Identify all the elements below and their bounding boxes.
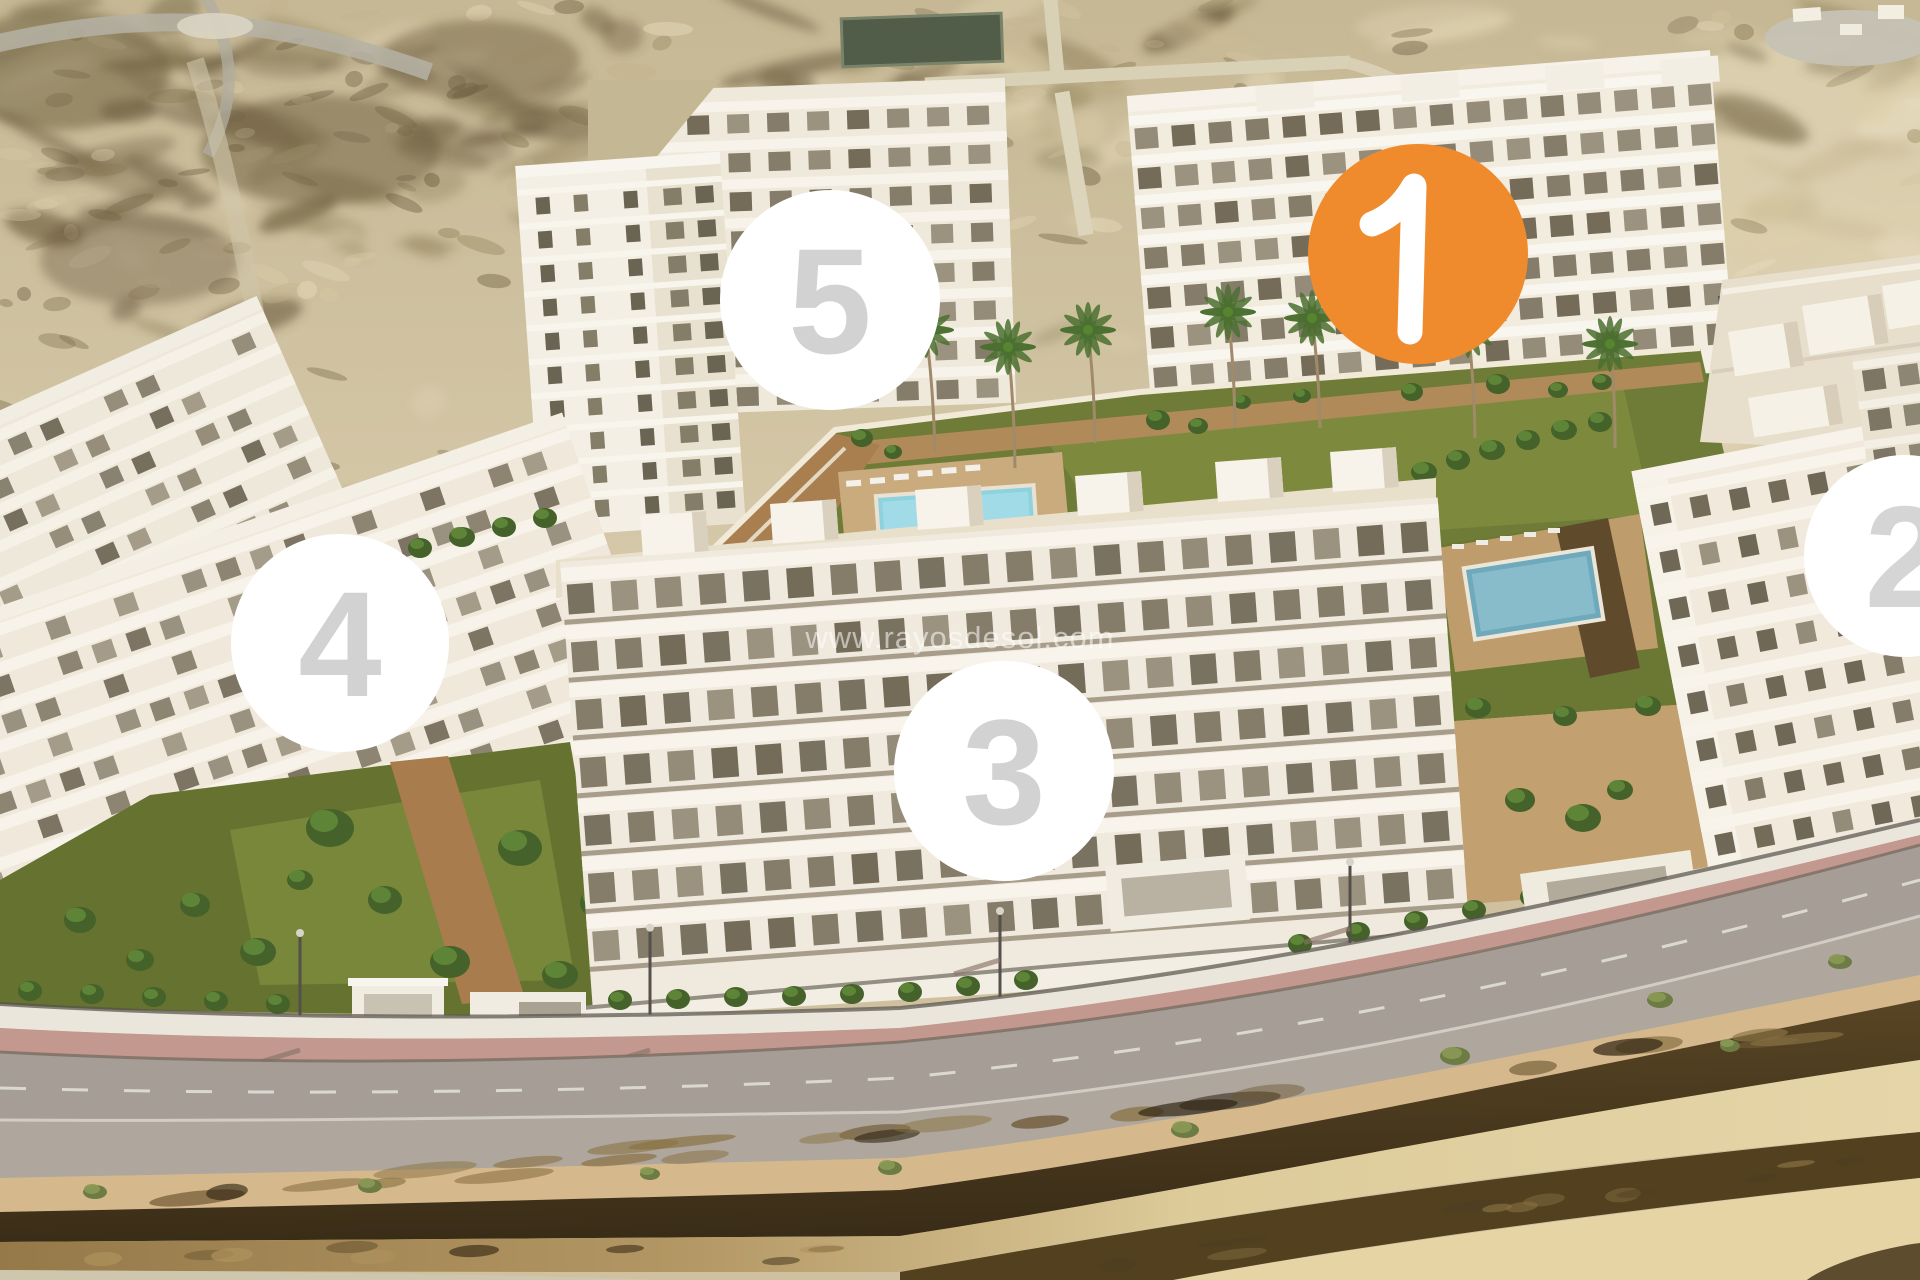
svg-text:3: 3 — [962, 688, 1045, 856]
svg-text:5: 5 — [788, 217, 871, 385]
svg-text:www.rayosdesol.com: www.rayosdesol.com — [804, 620, 1114, 655]
svg-text:2: 2 — [1865, 476, 1920, 638]
svg-text:4: 4 — [298, 560, 381, 728]
